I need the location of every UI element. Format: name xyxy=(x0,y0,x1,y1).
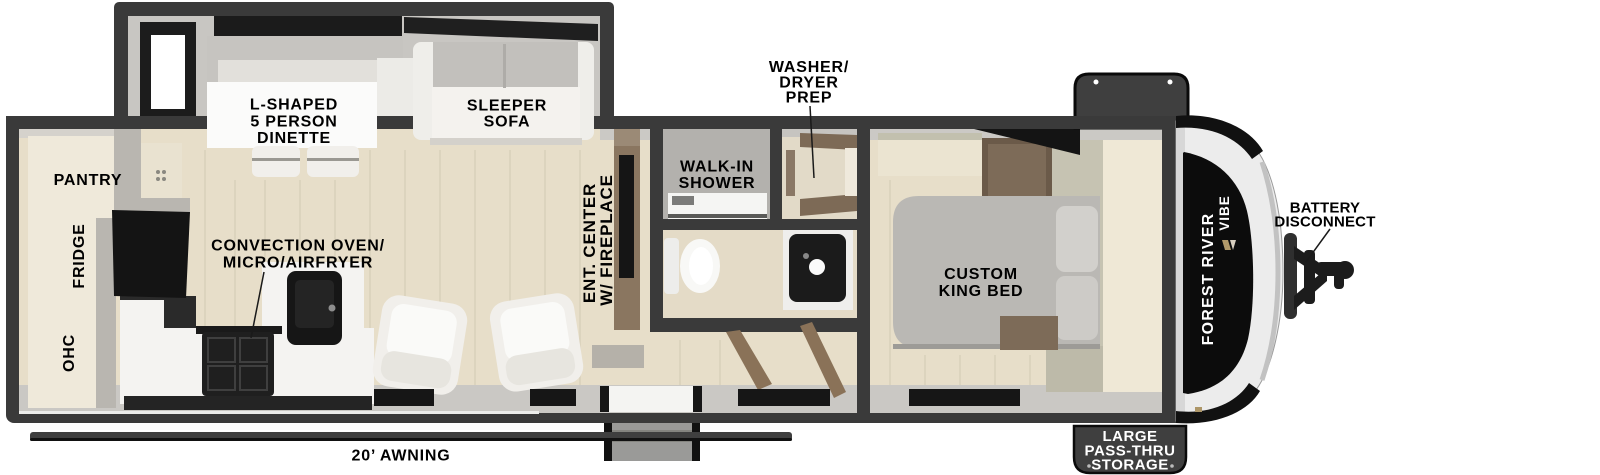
svg-text:SLEEPER: SLEEPER xyxy=(467,97,547,114)
svg-text:W/ FIREPLACE: W/ FIREPLACE xyxy=(597,174,616,305)
svg-text:5 PERSON: 5 PERSON xyxy=(250,113,337,130)
svg-text:FRIDGE: FRIDGE xyxy=(71,223,88,288)
svg-text:PANTRY: PANTRY xyxy=(54,172,123,189)
svg-text:MICRO/AIRFRYER: MICRO/AIRFRYER xyxy=(223,255,373,272)
svg-text:DISCONNECT: DISCONNECT xyxy=(1274,214,1375,231)
svg-text:WASHER/: WASHER/ xyxy=(769,59,849,76)
svg-text:VIBE: VIBE xyxy=(1217,195,1232,231)
svg-text:L-SHAPED: L-SHAPED xyxy=(250,97,338,114)
svg-text:STORAGE: STORAGE xyxy=(1091,457,1168,474)
svg-text:KING BED: KING BED xyxy=(939,283,1024,300)
svg-text:20’ AWNING: 20’ AWNING xyxy=(352,448,451,465)
svg-text:CUSTOM: CUSTOM xyxy=(944,266,1018,283)
svg-text:DINETTE: DINETTE xyxy=(257,130,331,147)
svg-text:SOFA: SOFA xyxy=(484,114,531,131)
svg-text:CONVECTION OVEN/: CONVECTION OVEN/ xyxy=(211,238,385,255)
svg-text:PREP: PREP xyxy=(786,90,833,107)
svg-text:SHOWER: SHOWER xyxy=(679,175,756,192)
svg-text:OHC: OHC xyxy=(61,334,78,372)
svg-text:WALK-IN: WALK-IN xyxy=(680,158,754,175)
svg-text:FOREST RIVER: FOREST RIVER xyxy=(1200,213,1217,346)
